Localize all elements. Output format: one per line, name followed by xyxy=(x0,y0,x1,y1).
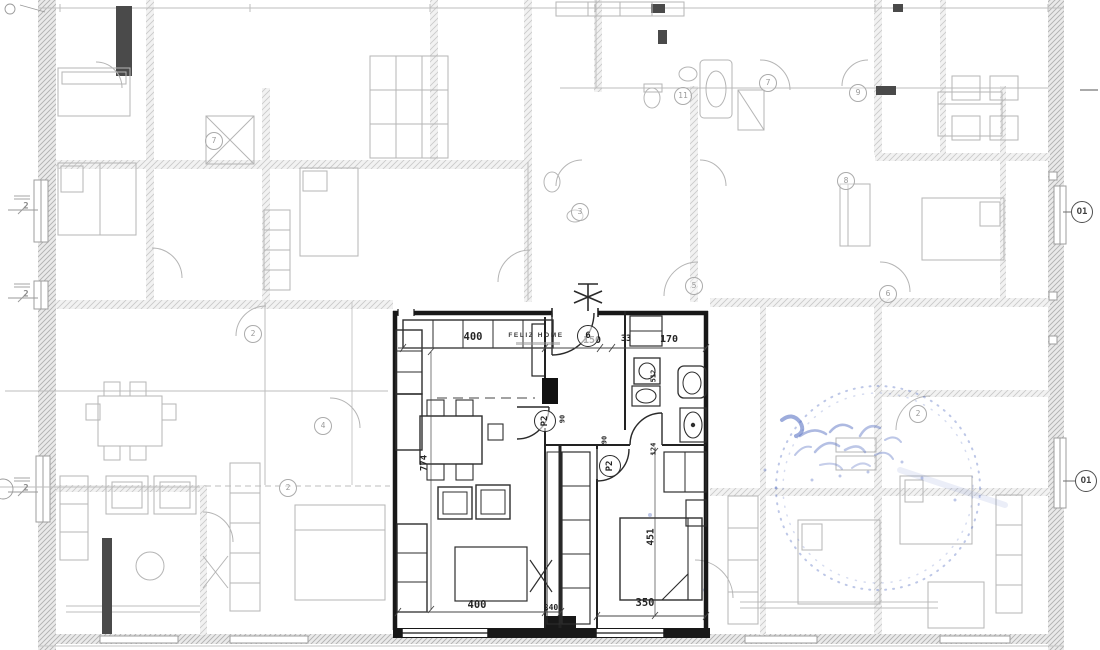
dimension-label: 400 xyxy=(468,600,487,611)
dimension-label: 451 xyxy=(646,528,656,545)
dimension-label: 124 xyxy=(651,443,658,456)
room-number-tag: 2 xyxy=(909,405,927,423)
window-tag: O1 xyxy=(1071,201,1093,223)
dimension-label: 350 xyxy=(636,598,655,609)
wall-dimension-marker: 2 xyxy=(23,291,28,300)
dimension-label: 512 xyxy=(651,370,658,383)
room-number-tag: 4 xyxy=(314,417,332,435)
room-number-tag: 11 xyxy=(674,87,692,105)
door-tag: P2 xyxy=(534,410,556,432)
room-number-tag: 7 xyxy=(759,74,777,92)
labels-layer: 400150331707745121249090451400240350FELI… xyxy=(0,0,1100,650)
room-number-tag: 2 xyxy=(244,325,262,343)
window-tag: O1 xyxy=(1075,470,1097,492)
room-number-tag: 9 xyxy=(849,84,867,102)
door-tag: P2 xyxy=(599,455,621,477)
room-number-tag: 5 xyxy=(685,277,703,295)
room-tag: 6 xyxy=(577,325,599,347)
dimension-label: 90 xyxy=(560,415,567,423)
dimension-label: 170 xyxy=(660,335,678,345)
floor-plan-scan: 400150331707745121249090451400240350FELI… xyxy=(0,0,1100,650)
wall-dimension-marker: 2 xyxy=(23,203,28,212)
dimension-label: 90 xyxy=(602,436,609,444)
wall-dimension-marker: 2 xyxy=(23,485,28,494)
room-number-tag: 7 xyxy=(205,132,223,150)
room-number-tag: 2 xyxy=(279,479,297,497)
room-number-tag: 8 xyxy=(837,172,855,190)
dimension-label: 33 xyxy=(621,335,631,344)
room-number-tag: 3 xyxy=(571,203,589,221)
feliz-home-stamp-text: FELIZ HOME xyxy=(508,333,563,340)
dimension-label: 774 xyxy=(421,455,430,471)
dimension-label: 240 xyxy=(544,604,558,612)
room-number-tag: 6 xyxy=(879,285,897,303)
dimension-label: 400 xyxy=(464,332,483,343)
